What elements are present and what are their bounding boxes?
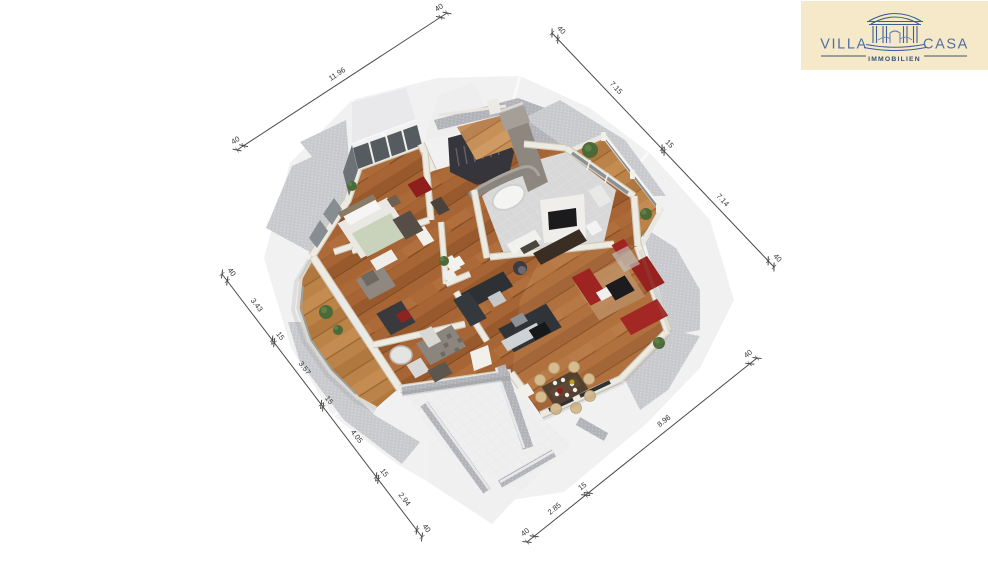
svg-text:VILLA: VILLA [820, 37, 868, 53]
svg-text:CASA: CASA [923, 37, 969, 53]
svg-text:IMMOBILIEN: IMMOBILIEN [868, 56, 921, 63]
